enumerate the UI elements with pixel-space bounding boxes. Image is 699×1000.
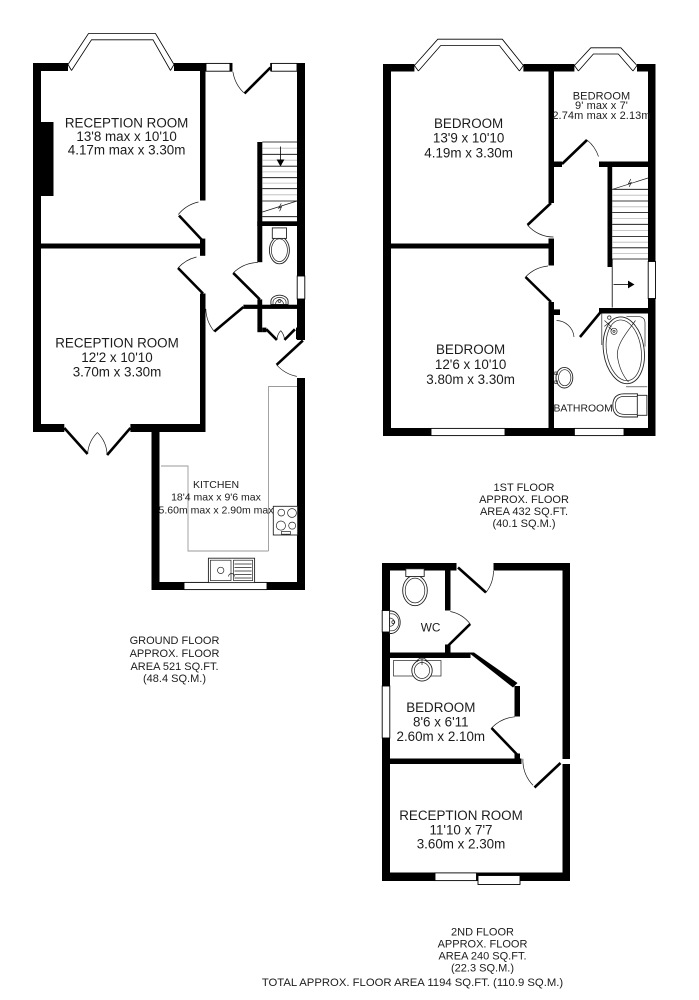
- svg-text:AREA 521 SQ.FT.: AREA 521 SQ.FT.: [130, 661, 218, 673]
- svg-text:APPROX. FLOOR: APPROX. FLOOR: [479, 494, 569, 506]
- svg-text:8'6 x 6'11: 8'6 x 6'11: [413, 715, 469, 730]
- svg-text:(48.4 SQ.M.): (48.4 SQ.M.): [143, 673, 206, 685]
- svg-text:BEDROOM: BEDROOM: [434, 116, 503, 131]
- svg-text:2.74m max x 2.13m: 2.74m max x 2.13m: [552, 110, 650, 122]
- svg-text:(22.3 SQ.M.): (22.3 SQ.M.): [451, 963, 514, 975]
- svg-text:3.80m x 3.30m: 3.80m x 3.30m: [426, 372, 515, 387]
- svg-text:TOTAL APPROX. FLOOR AREA 1194: TOTAL APPROX. FLOOR AREA 1194 SQ.FT. (11…: [262, 977, 564, 989]
- svg-text:AREA 432 SQ.FT.: AREA 432 SQ.FT.: [480, 506, 568, 518]
- svg-text:3.60m x 2.30m: 3.60m x 2.30m: [417, 836, 506, 851]
- svg-text:13'9 x 10'10: 13'9 x 10'10: [433, 131, 504, 146]
- svg-text:2.60m x 2.10m: 2.60m x 2.10m: [397, 729, 486, 744]
- svg-text:APPROX. FLOOR: APPROX. FLOOR: [130, 648, 220, 660]
- svg-text:AREA 240 SQ.FT.: AREA 240 SQ.FT.: [438, 951, 526, 963]
- svg-text:BATHROOM: BATHROOM: [554, 403, 613, 414]
- svg-text:5.60m max x 2.90m max: 5.60m max x 2.90m max: [159, 504, 275, 516]
- svg-text:18'4 max x 9'6 max: 18'4 max x 9'6 max: [171, 492, 262, 504]
- svg-text:(40.1 SQ.M.): (40.1 SQ.M.): [493, 518, 556, 530]
- svg-text:4.17m max x 3.30m: 4.17m max x 3.30m: [68, 143, 186, 158]
- svg-text:BEDROOM: BEDROOM: [406, 700, 475, 715]
- svg-text:BEDROOM: BEDROOM: [436, 342, 505, 357]
- svg-text:2ND FLOOR: 2ND FLOOR: [451, 927, 514, 939]
- svg-text:12'6 x 10'10: 12'6 x 10'10: [435, 357, 506, 372]
- svg-text:GROUND FLOOR: GROUND FLOOR: [130, 635, 220, 647]
- svg-text:RECEPTION ROOM: RECEPTION ROOM: [55, 336, 179, 351]
- svg-text:12'2 x 10'10: 12'2 x 10'10: [81, 350, 152, 365]
- svg-text:KITCHEN: KITCHEN: [193, 479, 239, 491]
- svg-text:3.70m x 3.30m: 3.70m x 3.30m: [73, 364, 162, 379]
- svg-text:WC: WC: [421, 621, 441, 635]
- svg-text:APPROX. FLOOR: APPROX. FLOOR: [438, 939, 528, 951]
- svg-text:RECEPTION ROOM: RECEPTION ROOM: [399, 808, 523, 823]
- svg-text:4.19m x 3.30m: 4.19m x 3.30m: [424, 145, 513, 160]
- svg-text:1ST FLOOR: 1ST FLOOR: [494, 482, 555, 494]
- svg-text:11'10 x 7'7: 11'10 x 7'7: [430, 822, 493, 837]
